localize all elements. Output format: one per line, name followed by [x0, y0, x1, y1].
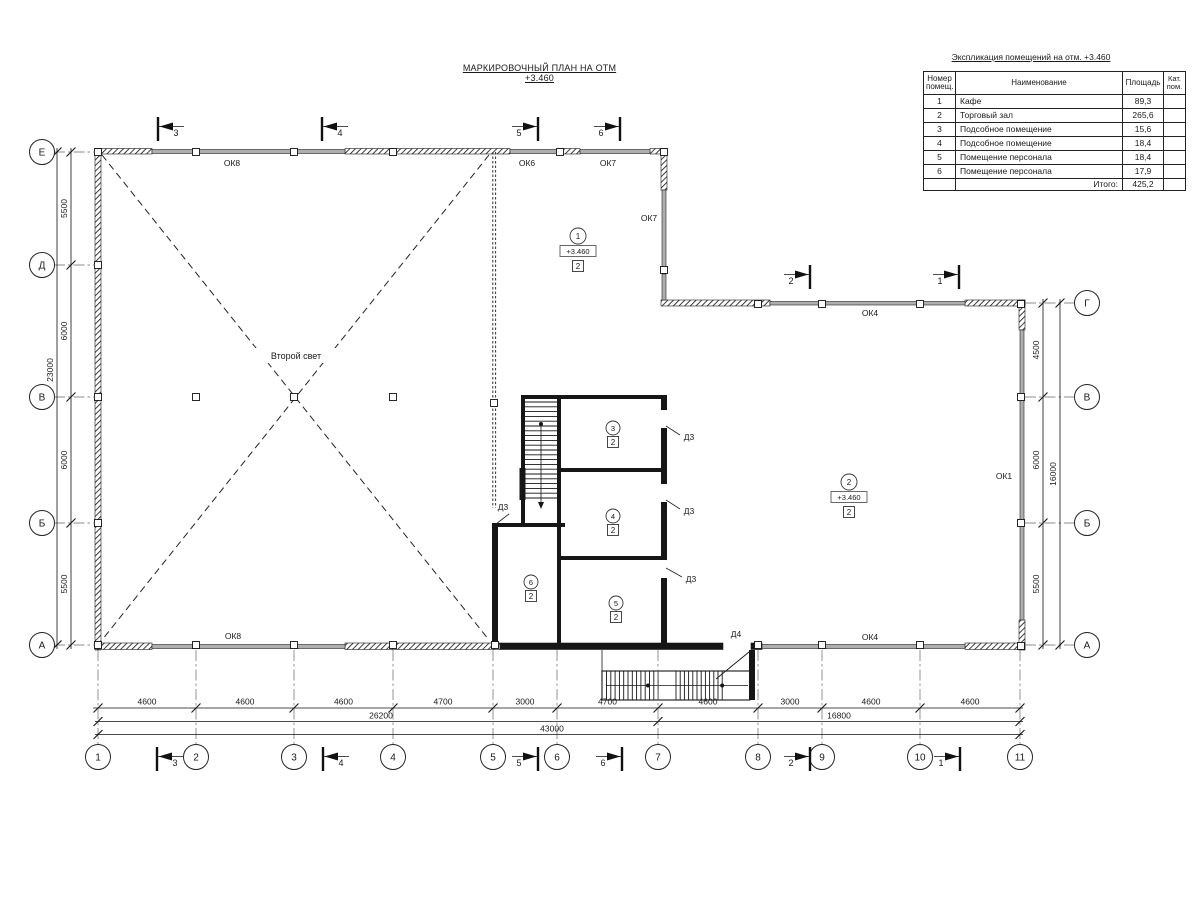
axis-bubbles: Е Д В Б А Г В Б А 1 2 3 4 5 6 7 8 9 10 1…	[30, 140, 1100, 770]
room-marker-type: 2	[611, 438, 616, 447]
dim-bottom-7: 4600	[699, 697, 718, 707]
axis-label: Е	[39, 148, 46, 159]
dim-bottom-1: 4600	[138, 697, 157, 707]
section-mark-label: 5	[516, 128, 521, 138]
dim-bottom-10: 4600	[961, 697, 980, 707]
section-mark-label: 4	[338, 758, 343, 768]
dim-right-2: 6000	[1031, 450, 1041, 469]
floor-plan: 5500 6000 6000 5500 23000 4500 6000 5500…	[0, 0, 1200, 900]
axis-label: 6	[554, 753, 560, 764]
axis-label: 10	[914, 753, 926, 764]
dim-left-1: 5500	[59, 199, 69, 218]
dim-bottom-3: 4600	[334, 697, 353, 707]
dim-bottom-8: 3000	[781, 697, 800, 707]
dim-left-total: 23000	[45, 358, 55, 382]
axis-label: Г	[1084, 299, 1090, 310]
dim-bottom-2: 4600	[236, 697, 255, 707]
axis-label: 1	[95, 753, 101, 764]
dim-right-3: 5500	[1031, 574, 1041, 593]
dim-left-4: 5500	[59, 574, 69, 593]
door-label-d3: Д3	[684, 506, 695, 516]
axis-label: 4	[390, 753, 396, 764]
room-marker-elevation: +3.460	[566, 247, 589, 256]
dim-bottom-5: 3000	[516, 697, 535, 707]
section-mark-label: 5	[516, 758, 521, 768]
room-marker-type: 2	[611, 526, 616, 535]
window-label-ok4-top: ОК4	[862, 308, 879, 318]
room-marker-type: 2	[847, 508, 852, 517]
plan-labels: Второй свет ОК8 ОК6 ОК7 ОК7 ОК8 ОК4 ОК4 …	[224, 158, 1013, 642]
axis-label: 9	[819, 753, 825, 764]
axis-label: А	[39, 641, 46, 652]
axis-label: 2	[193, 753, 199, 764]
dim-bottom-9: 4600	[862, 697, 881, 707]
glazed-partition	[493, 152, 496, 508]
room-marker-number: 1	[576, 232, 581, 241]
section-mark-label: 4	[337, 128, 342, 138]
dim-left-3: 6000	[59, 450, 69, 469]
axis-label: Б	[39, 519, 46, 530]
door-label-d4: Д4	[731, 629, 742, 639]
axis-label: В	[39, 393, 46, 404]
section-mark-label: 3	[172, 758, 177, 768]
room-marker-number: 3	[611, 424, 615, 433]
room-marker-type: 2	[576, 262, 581, 271]
axis-label: 3	[291, 753, 297, 764]
internal-stair	[525, 402, 557, 509]
room-marker-type: 2	[529, 592, 534, 601]
dim-bottom-sub2: 16800	[827, 711, 851, 721]
window-label-ok7-top: ОК7	[600, 158, 617, 168]
dim-bottom-total: 43000	[540, 724, 564, 734]
section-mark-label: 6	[600, 758, 605, 768]
section-mark-label: 6	[598, 128, 603, 138]
dim-left-2: 6000	[59, 321, 69, 340]
section-mark-label: 2	[788, 758, 793, 768]
room-marker-elevation: +3.460	[837, 493, 860, 502]
door-label-d3: Д3	[498, 502, 509, 512]
room-marker-number: 6	[529, 578, 533, 587]
axis-label: 11	[1015, 753, 1026, 764]
dim-bottom-6: 4700	[598, 697, 617, 707]
axis-label: Б	[1084, 519, 1091, 530]
axis-label: 5	[490, 753, 496, 764]
axis-label: В	[1084, 393, 1091, 404]
window-label-ok7-side: ОК7	[641, 213, 658, 223]
partitions	[492, 395, 667, 643]
dim-bottom-4: 4700	[434, 697, 453, 707]
second-light-label: Второй свет	[271, 351, 321, 361]
section-mark-label: 1	[938, 758, 943, 768]
room-marker-number: 2	[847, 478, 852, 487]
exterior-stair	[602, 650, 755, 700]
room-marker-number: 4	[611, 512, 615, 521]
dim-right-total: 16000	[1048, 462, 1058, 486]
section-mark-label: 1	[937, 276, 942, 286]
window-label-ok8-top: ОК8	[224, 158, 241, 168]
window-label-ok1: ОК1	[996, 471, 1013, 481]
dim-bottom-sub1: 26200	[369, 711, 393, 721]
room-marker-type: 2	[614, 613, 619, 622]
section-mark-label: 3	[173, 128, 178, 138]
axis-label: Д	[39, 261, 46, 272]
axis-label: 7	[655, 753, 661, 764]
axis-lines	[54, 152, 1074, 744]
room-marker-number: 5	[614, 599, 618, 608]
door-label-d3: Д3	[686, 574, 697, 584]
window-label-ok6-top: ОК6	[519, 158, 536, 168]
dim-right-1: 4500	[1031, 340, 1041, 359]
room-markers: 1 +3.460 2 2 +3.460 2 3 2 4 2 5 2 6 2	[524, 228, 867, 623]
section-mark-label: 2	[788, 276, 793, 286]
axis-label: А	[1084, 641, 1091, 652]
window-label-ok4-bottom: ОК4	[862, 632, 879, 642]
window-label-ok8-bottom: ОК8	[225, 631, 242, 641]
door-label-d3: Д3	[684, 432, 695, 442]
dimension-labels: 5500 6000 6000 5500 23000 4500 6000 5500…	[45, 199, 1058, 734]
axis-label: 8	[755, 753, 761, 764]
